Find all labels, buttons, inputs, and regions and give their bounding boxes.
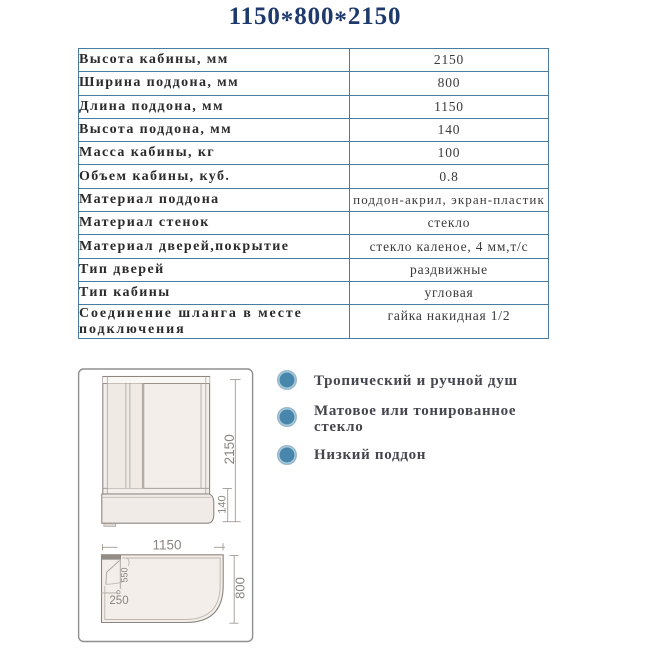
svg-text:250: 250 [109, 595, 128, 607]
svg-text:140: 140 [217, 495, 229, 513]
svg-text:2150: 2150 [222, 434, 237, 464]
svg-text:800: 800 [233, 577, 248, 599]
svg-text:1150: 1150 [152, 537, 181, 552]
svg-text:550: 550 [120, 567, 130, 582]
